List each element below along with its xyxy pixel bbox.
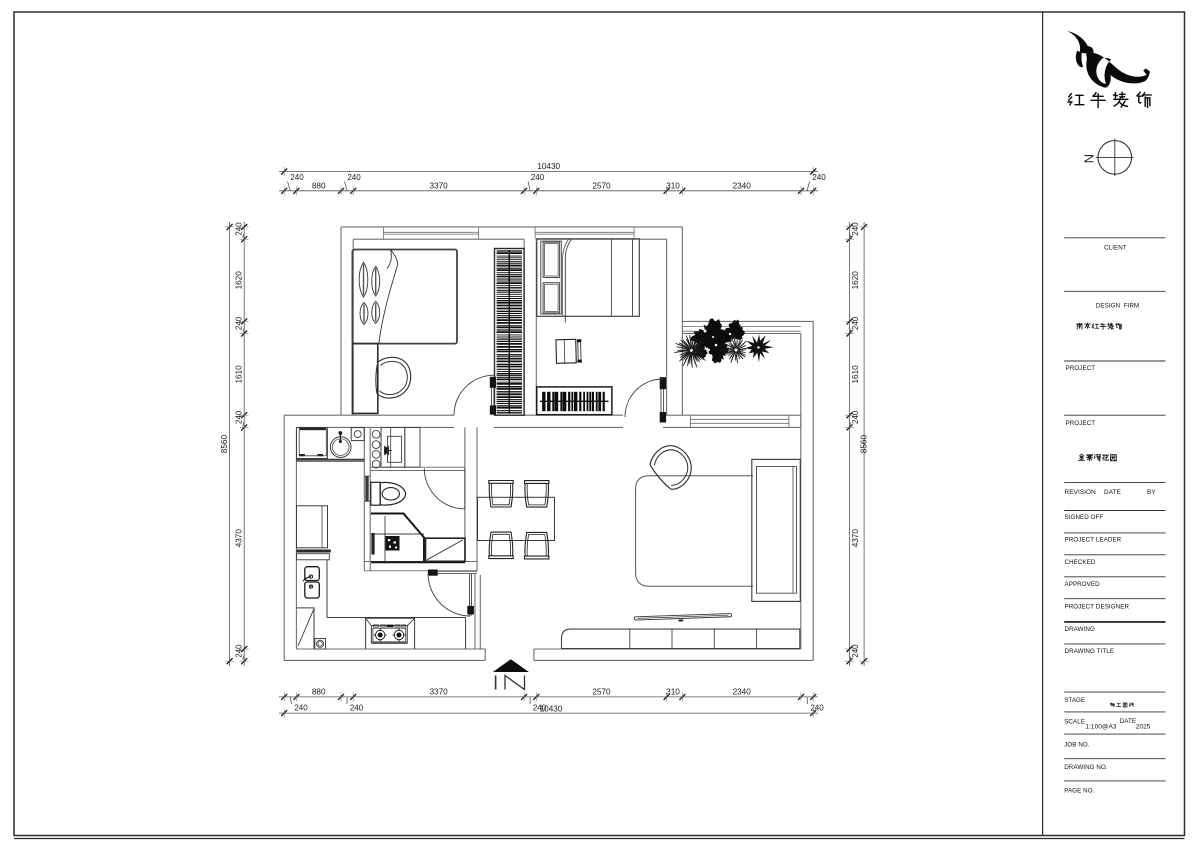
svg-text:1610: 1610 bbox=[851, 365, 860, 384]
svg-text:2025: 2025 bbox=[1136, 723, 1151, 730]
svg-text:SCALE: SCALE bbox=[1064, 718, 1085, 725]
svg-text:2570: 2570 bbox=[592, 181, 611, 190]
svg-text:240: 240 bbox=[294, 704, 308, 713]
svg-text:240: 240 bbox=[810, 704, 824, 713]
svg-text:3370: 3370 bbox=[429, 687, 448, 696]
svg-text:240: 240 bbox=[851, 222, 860, 236]
svg-text:SIGNED OFF: SIGNED OFF bbox=[1065, 514, 1104, 521]
svg-text:880: 880 bbox=[312, 181, 326, 190]
svg-text:STAGE: STAGE bbox=[1064, 697, 1085, 704]
svg-text:CHECKED: CHECKED bbox=[1065, 559, 1096, 566]
svg-text:PROJECT: PROJECT bbox=[1066, 420, 1096, 427]
svg-text:4370: 4370 bbox=[235, 529, 244, 548]
svg-text:310: 310 bbox=[666, 687, 680, 696]
svg-text:1620: 1620 bbox=[851, 271, 860, 290]
svg-text:240: 240 bbox=[851, 316, 860, 330]
svg-text:8560: 8560 bbox=[860, 435, 869, 454]
svg-text:PROJECT DESIGNER: PROJECT DESIGNER bbox=[1065, 604, 1130, 611]
svg-text:240: 240 bbox=[350, 704, 364, 713]
svg-text:240: 240 bbox=[235, 644, 244, 658]
svg-text:JOB NO.: JOB NO. bbox=[1064, 742, 1090, 749]
svg-text:310: 310 bbox=[666, 181, 680, 190]
svg-text:2570: 2570 bbox=[592, 687, 611, 696]
svg-text:240: 240 bbox=[347, 173, 361, 182]
svg-text:240: 240 bbox=[235, 222, 244, 236]
svg-text:240: 240 bbox=[235, 316, 244, 330]
svg-text:DRAWING NO.: DRAWING NO. bbox=[1064, 764, 1108, 771]
svg-text:DESIGN FIRM: DESIGN FIRM bbox=[1096, 303, 1139, 310]
svg-text:DATE: DATE bbox=[1104, 489, 1121, 496]
svg-text:PAGE NO.: PAGE NO. bbox=[1064, 788, 1094, 795]
svg-text:PROJECT LEADER: PROJECT LEADER bbox=[1065, 536, 1122, 543]
svg-text:DRAWING TITLE: DRAWING TITLE bbox=[1065, 648, 1115, 655]
svg-text:PROJECT: PROJECT bbox=[1066, 365, 1096, 372]
svg-text:240: 240 bbox=[290, 173, 304, 182]
svg-text:1620: 1620 bbox=[235, 271, 244, 290]
svg-text:240: 240 bbox=[851, 410, 860, 424]
svg-text:BY: BY bbox=[1147, 489, 1156, 496]
svg-text:1610: 1610 bbox=[235, 365, 244, 384]
svg-text:10430: 10430 bbox=[537, 162, 560, 171]
svg-text:8560: 8560 bbox=[220, 435, 229, 454]
svg-text:240: 240 bbox=[235, 410, 244, 424]
svg-text:CLIENT: CLIENT bbox=[1104, 244, 1127, 251]
svg-text:240: 240 bbox=[533, 704, 547, 713]
svg-text:240: 240 bbox=[812, 173, 826, 182]
svg-text:880: 880 bbox=[312, 687, 326, 696]
svg-text:APPROVED: APPROVED bbox=[1065, 581, 1101, 588]
svg-text:2340: 2340 bbox=[733, 181, 752, 190]
svg-text:1:100@A3: 1:100@A3 bbox=[1085, 723, 1116, 730]
svg-text:REVISION: REVISION bbox=[1065, 489, 1097, 496]
svg-text:240: 240 bbox=[851, 644, 860, 658]
svg-text:DATE: DATE bbox=[1120, 718, 1136, 725]
svg-text:3370: 3370 bbox=[429, 181, 448, 190]
svg-text:240: 240 bbox=[531, 173, 545, 182]
svg-text:4370: 4370 bbox=[851, 529, 860, 548]
svg-text:N: N bbox=[1082, 154, 1097, 163]
svg-text:DRAWING: DRAWING bbox=[1065, 626, 1095, 633]
svg-text:2340: 2340 bbox=[733, 687, 752, 696]
